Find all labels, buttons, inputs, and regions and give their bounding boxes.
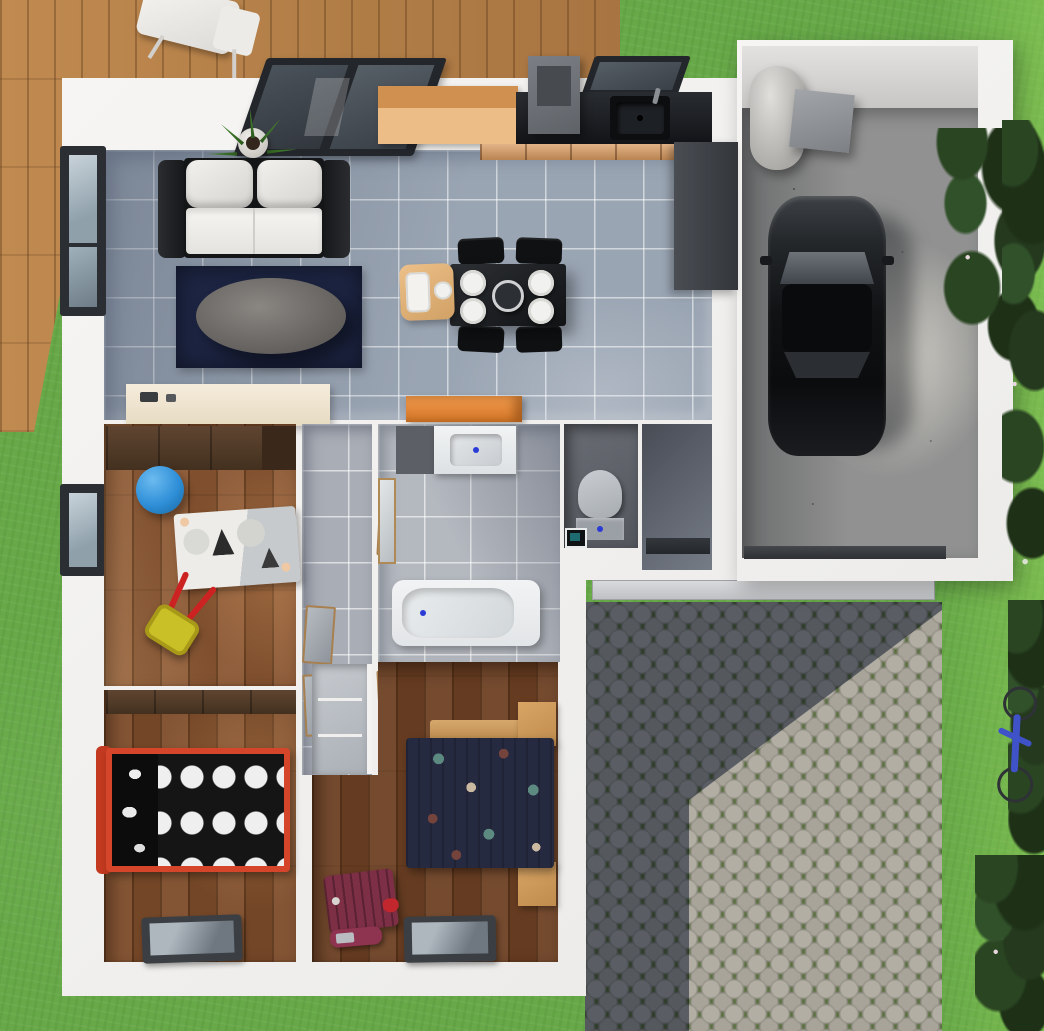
- patterned-duvet: [406, 738, 554, 868]
- bushes-bottom-right: [975, 855, 1044, 1031]
- sofa-armrest: [320, 160, 350, 258]
- sink-drain: [637, 115, 643, 121]
- area-rug: [176, 266, 362, 368]
- living-side-window: [60, 146, 106, 316]
- deck-chair-leg: [232, 49, 236, 79]
- high-chair: [399, 263, 455, 321]
- master-window: [404, 915, 497, 963]
- sideboard-object: [166, 394, 176, 402]
- car-roof: [782, 284, 872, 352]
- plant-soil: [246, 136, 260, 150]
- kids-wardrobe: [106, 426, 262, 470]
- bathtub: [392, 580, 540, 646]
- potted-plant: [224, 102, 280, 160]
- bush-strip-right: [1002, 120, 1044, 600]
- zebra-play-rug: [173, 506, 300, 590]
- floor-plan-render: [0, 0, 1044, 1031]
- glass-pane: [590, 62, 682, 90]
- paved-patio: [585, 574, 942, 1031]
- dining-set: [400, 238, 576, 356]
- dining-chair: [516, 325, 563, 353]
- front-door: [646, 538, 710, 554]
- hood-vent: [537, 66, 571, 106]
- tall-cabinet: [674, 142, 738, 290]
- plate: [460, 298, 486, 324]
- rug-motif-dark: [260, 547, 279, 568]
- rug-motif: [183, 528, 211, 556]
- car-rear-window: [784, 352, 870, 378]
- glass-pane: [149, 921, 234, 956]
- sideboard-object: [140, 392, 158, 402]
- vanity-drain: [473, 447, 479, 453]
- glass-pane: [69, 247, 97, 307]
- high-chair-seat: [405, 272, 430, 313]
- dining-chair: [516, 237, 563, 265]
- kids-wardrobe-end: [262, 426, 296, 470]
- double-bed: [406, 720, 556, 872]
- nightstand: [518, 862, 556, 906]
- glass-pane: [69, 155, 97, 243]
- glass-pane: [69, 493, 97, 567]
- high-chair-plate: [434, 281, 453, 300]
- rug-motif-dark: [211, 528, 235, 555]
- coffee-table: [196, 278, 346, 354]
- toilet-button: [597, 526, 603, 532]
- rug-dot: [180, 517, 190, 527]
- bathtub-basin: [402, 588, 514, 638]
- closet-shelf: [318, 734, 362, 737]
- car: [768, 196, 890, 458]
- car-mirror: [760, 256, 772, 265]
- vanity-sink: [434, 426, 516, 474]
- plate: [460, 270, 486, 296]
- bedroom-wardrobe: [106, 690, 296, 714]
- interior-door: [302, 605, 336, 665]
- bathtub-drain: [420, 610, 426, 616]
- bedroom-window: [141, 914, 243, 963]
- corner-sink: [565, 528, 587, 548]
- car-mirror: [882, 256, 894, 265]
- master-closet: [312, 664, 372, 774]
- suitcase-cup: [382, 897, 400, 913]
- plate: [528, 298, 554, 324]
- kitchen-window: [581, 56, 691, 96]
- orange-dresser: [406, 396, 522, 422]
- sofa-seat-seam: [253, 208, 255, 254]
- bicycle-frame: [1011, 714, 1021, 772]
- sofa-back-cushion: [186, 160, 253, 208]
- kitchen-sink: [610, 96, 670, 140]
- kitchen-island: [378, 86, 518, 144]
- utility-box: [789, 89, 855, 153]
- sideboard: [126, 384, 330, 426]
- bathroom-mirror: [378, 478, 396, 564]
- glass-pane: [412, 921, 489, 954]
- dining-chair: [457, 237, 504, 265]
- suitcase: [323, 868, 400, 934]
- closet-shelf: [318, 698, 362, 701]
- vanity-side-panel: [396, 426, 434, 474]
- corner-sink-basin: [570, 533, 580, 541]
- range-hood: [528, 56, 580, 134]
- entrance-step: [592, 580, 935, 600]
- kids-side-window: [60, 484, 106, 576]
- bag-panel: [336, 932, 355, 944]
- bed-pillow: [112, 754, 158, 866]
- suitcase-lock: [331, 897, 340, 906]
- deck-chair-leg: [148, 35, 165, 59]
- dining-chair: [457, 325, 504, 353]
- play-ball: [136, 466, 184, 514]
- single-bed: [96, 746, 294, 874]
- toilet: [578, 470, 622, 518]
- car-windshield: [780, 252, 874, 284]
- garage-door: [744, 546, 946, 559]
- sofa-back-cushion: [257, 160, 322, 208]
- plate: [528, 270, 554, 296]
- sofa: [158, 156, 350, 264]
- rug-dot: [281, 562, 291, 572]
- rug-motif: [236, 518, 266, 548]
- serving-bowl: [492, 280, 524, 312]
